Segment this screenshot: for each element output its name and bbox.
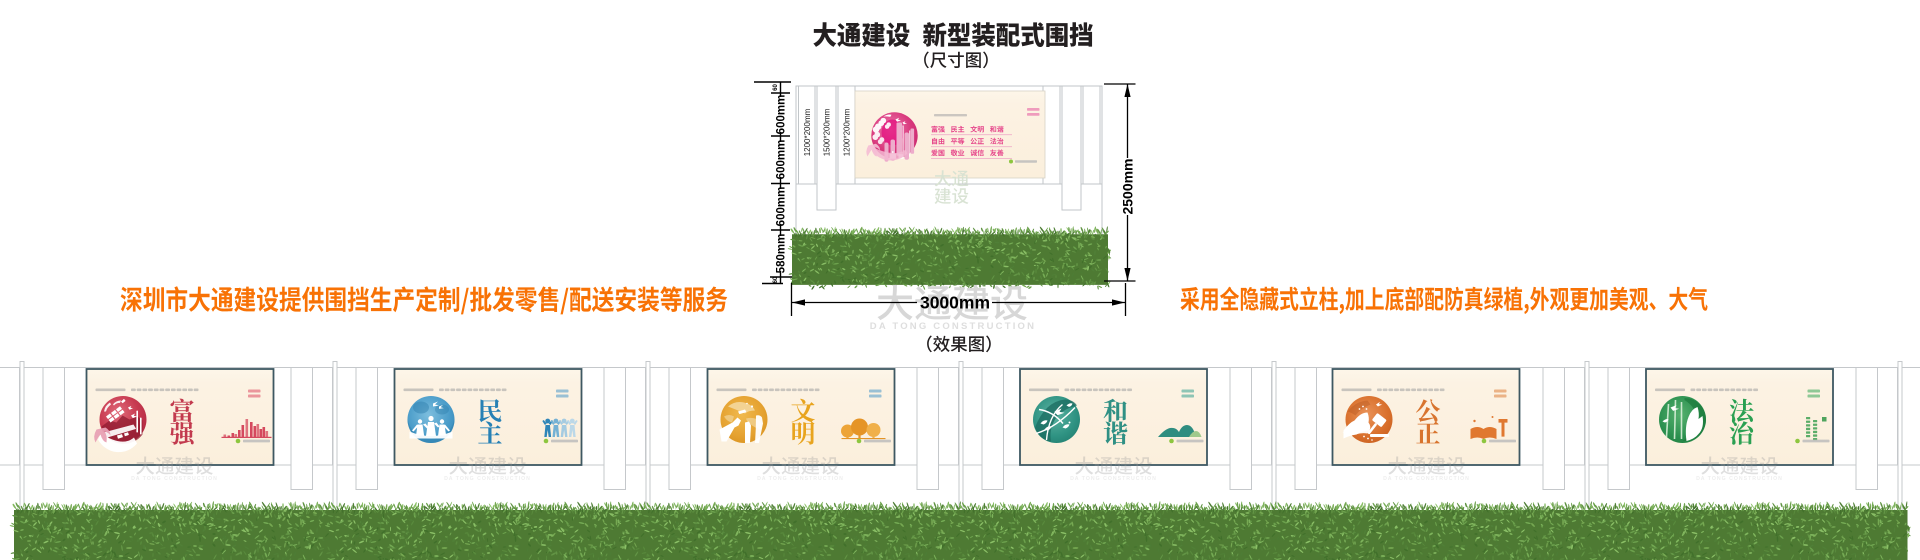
svg-text:2500mm: 2500mm	[1120, 158, 1136, 214]
svg-text:DA TONG CONSTRUCTION: DA TONG CONSTRUCTION	[1383, 476, 1470, 482]
svg-text:DA TONG CONSTRUCTION: DA TONG CONSTRUCTION	[131, 476, 218, 482]
svg-text:DA TONG CONSTRUCTION: DA TONG CONSTRUCTION	[870, 321, 1036, 332]
svg-text:600mm: 600mm	[776, 187, 788, 227]
svg-text:600mm: 600mm	[776, 140, 788, 180]
svg-text:1200*200mm: 1200*200mm	[803, 108, 812, 156]
svg-text:DA TONG CONSTRUCTION: DA TONG CONSTRUCTION	[757, 476, 844, 482]
svg-text:DA TONG CONSTRUCTION: DA TONG CONSTRUCTION	[1070, 476, 1157, 482]
svg-text:1200*200mm: 1200*200mm	[843, 108, 852, 156]
svg-text:600mm: 600mm	[776, 95, 788, 135]
svg-text:DA TONG CONSTRUCTION: DA TONG CONSTRUCTION	[1696, 476, 1783, 482]
svg-text:1500*200mm: 1500*200mm	[823, 108, 832, 156]
svg-text:60: 60	[773, 84, 779, 91]
svg-text:DA TONG CONSTRUCTION: DA TONG CONSTRUCTION	[444, 476, 531, 482]
svg-text:3000mm: 3000mm	[920, 293, 990, 313]
svg-text:580mm: 580mm	[776, 234, 788, 274]
svg-text:60: 60	[773, 276, 779, 283]
